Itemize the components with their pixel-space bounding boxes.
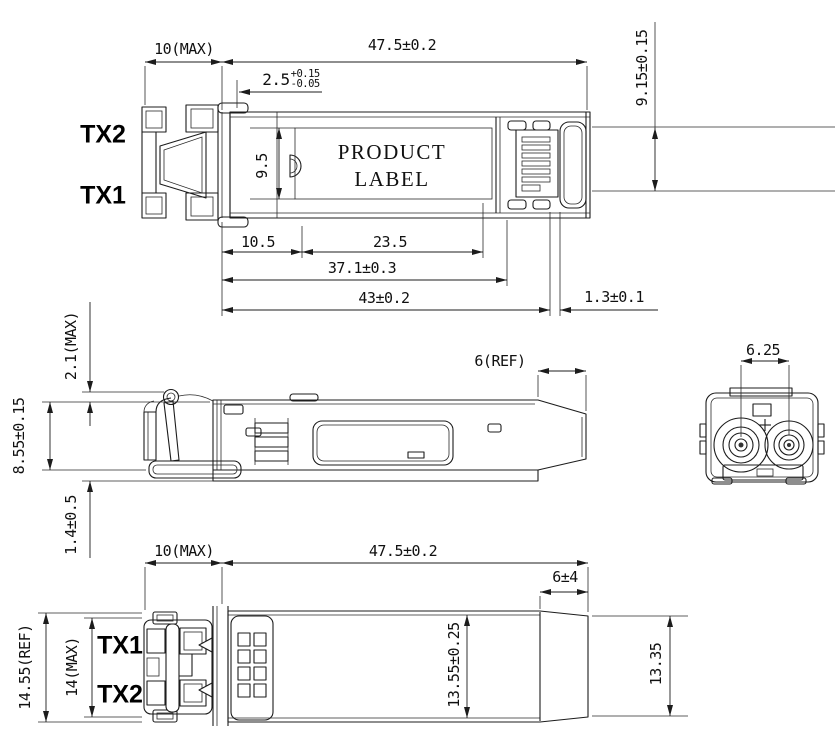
- contact-grid: [231, 616, 273, 720]
- dim-front-length-bottom: 10(MAX): [154, 542, 214, 560]
- lc-receptacle: [144, 612, 212, 722]
- side-notch: [818, 424, 824, 437]
- recessed-panel: [313, 421, 453, 465]
- rear-tab: [533, 121, 550, 130]
- rear-tab: [533, 200, 550, 209]
- side-body: [213, 400, 586, 470]
- front-ladder: [255, 418, 288, 465]
- lc-boot-taper: [160, 132, 206, 198]
- panel-slot: [408, 452, 424, 458]
- dim-body-width-max: 14(MAX): [63, 637, 81, 697]
- end-view-outline: [700, 388, 824, 484]
- dim-rear-taper-side: 6(REF): [474, 352, 525, 370]
- dim-overall-length-bottom: 47.5±0.2: [369, 542, 437, 560]
- product-label-line1: PRODUCT: [338, 139, 447, 166]
- dim-rear-width-top: 9.15±0.15: [633, 30, 651, 107]
- dim-tab-offset-tolerance: +0.15 -0.05: [291, 69, 320, 89]
- side-button: [246, 428, 261, 436]
- bail-latch: [144, 390, 241, 479]
- front-bar: [144, 412, 156, 460]
- product-label-line2: LABEL: [338, 166, 447, 193]
- dim-body-height: 8.55±0.15: [10, 398, 28, 475]
- key-slot: [753, 404, 771, 416]
- dim-port-pitch: 6.25: [746, 341, 780, 359]
- dim-rear-gap: 1.3±0.1: [584, 288, 644, 306]
- top-tab: [730, 388, 792, 396]
- product-label: PRODUCT LABEL: [338, 139, 447, 193]
- dim-mid-width: 13.55±0.25: [445, 622, 463, 707]
- side-notch: [700, 441, 706, 454]
- dim-overall-length-top: 47.5±0.2: [368, 36, 436, 54]
- side-view-outline: [144, 390, 586, 482]
- bottom-view-outline: [144, 606, 588, 726]
- foot: [712, 478, 732, 484]
- dim-bottom-protrusion: 1.4±0.5: [62, 495, 80, 555]
- center-capsule: [166, 624, 179, 712]
- rear-tab: [508, 121, 526, 130]
- rear-tab: [508, 200, 526, 209]
- port-label-tx1-bottom: TX1: [97, 632, 143, 661]
- dim-tab-offset-value: 2.5: [262, 70, 289, 89]
- dim-label-width: 9.5: [253, 153, 271, 179]
- dim-overall-width: 14.55(REF): [16, 624, 34, 709]
- dim-latch-protrusion: 2.1(MAX): [62, 312, 80, 380]
- bottom-rail: [213, 470, 538, 481]
- gold-fingers: [522, 137, 550, 191]
- bottom-slot: [757, 469, 773, 476]
- dim-front-to-label: 10.5: [241, 233, 275, 251]
- top-button: [224, 405, 243, 414]
- dim-rear-taper-bottom: 6±4: [552, 568, 578, 586]
- rear-button: [488, 424, 501, 432]
- dim-to-rear-stop: 37.1±0.3: [328, 259, 396, 277]
- bottom-body: [228, 611, 588, 722]
- dim-tab-offset: 2.5 +0.15 -0.05: [262, 69, 320, 89]
- port-label-tx1-top: TX1: [80, 182, 126, 211]
- port-label-tx2-top: TX2: [80, 121, 126, 150]
- dim-body-length: 43±0.2: [358, 289, 409, 307]
- top-view-dimensions: [145, 22, 835, 316]
- guide-pin: [290, 155, 301, 177]
- side-view-dimensions: [42, 302, 586, 558]
- side-notch: [818, 441, 824, 454]
- dim-front-length-top: 10(MAX): [154, 40, 214, 58]
- side-notch: [700, 424, 706, 437]
- dim-label-length: 23.5: [373, 233, 407, 251]
- mechanical-drawing: 10(MAX) 47.5±0.2 2.5 +0.15 -0.05 TX2 TX1…: [0, 0, 838, 750]
- dim-rear-width-bottom: 13.35: [647, 643, 665, 686]
- port-label-tx2-bottom: TX2: [97, 681, 143, 710]
